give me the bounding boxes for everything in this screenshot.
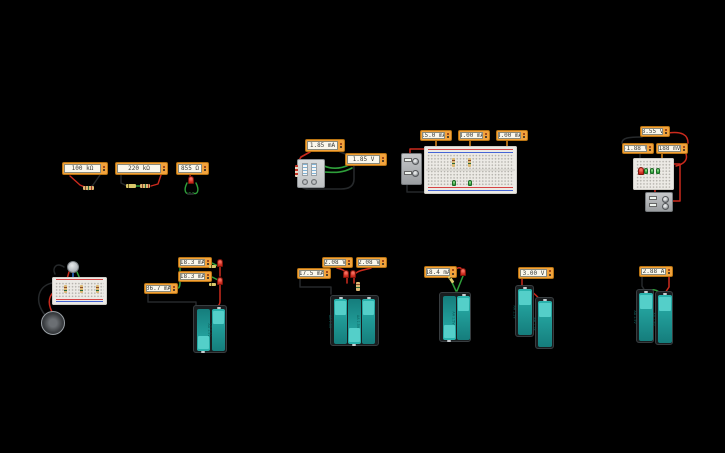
resistor[interactable] bbox=[96, 285, 99, 293]
power-rail-red bbox=[56, 279, 103, 280]
battery-terminal bbox=[644, 291, 648, 293]
multimeter-display: 2.08 V bbox=[358, 259, 380, 266]
ammeter-total[interactable]: 15.0 mA bbox=[420, 130, 452, 141]
meter-terminals-icon bbox=[484, 132, 488, 139]
multimeter-reading: 100 kΩ bbox=[72, 165, 94, 172]
multimeter-reading: 17.5 mA bbox=[299, 270, 324, 277]
battery-band bbox=[458, 298, 469, 311]
resistor[interactable] bbox=[209, 265, 216, 268]
battery-label: AA 1.5V bbox=[532, 320, 557, 328]
power-rail-red bbox=[428, 149, 513, 150]
green-led[interactable] bbox=[656, 168, 660, 174]
aa-battery[interactable]: AA 1.5V bbox=[518, 289, 532, 335]
battery-band bbox=[363, 301, 374, 315]
ammeter-led2[interactable]: 18.3 mA bbox=[178, 271, 212, 282]
battery-holder[interactable]: AA 1.5V bbox=[515, 285, 534, 337]
battery-holder[interactable]: AA 1.5V AA 1.5V bbox=[193, 305, 227, 353]
battery-terminal bbox=[543, 299, 547, 301]
multimeter-display: 1.85 mA bbox=[307, 141, 338, 150]
multimeter-display: 8.00 mA bbox=[460, 132, 483, 139]
multimeter-display: 18.3 mA bbox=[180, 273, 205, 280]
battery-terminal bbox=[217, 307, 221, 309]
aa-battery[interactable]: AA 1.5V bbox=[212, 309, 225, 351]
module-knob[interactable] bbox=[311, 179, 317, 185]
multimeter-display: 3.00 V bbox=[520, 269, 547, 277]
ammeter-loop[interactable]: 2.88 A bbox=[639, 266, 673, 277]
ammeter-branch2[interactable]: 8.00 mA bbox=[496, 130, 528, 141]
meter-terminals-icon bbox=[667, 268, 671, 275]
battery-holder[interactable]: AA 1.5V AA 1.5V bbox=[439, 292, 471, 342]
ammeter-led1[interactable]: 18.3 mA bbox=[178, 257, 212, 268]
battery-band bbox=[539, 303, 551, 317]
battery-band bbox=[335, 301, 346, 315]
aa-battery[interactable]: AA 1.5V bbox=[362, 299, 375, 344]
ammeter-module[interactable]: 1.85 mA bbox=[305, 139, 345, 152]
ammeter-branch1[interactable]: 8.00 mA bbox=[458, 130, 490, 141]
multimeter-display: 100 kΩ bbox=[64, 164, 101, 173]
multimeter-resistance-2[interactable]: 220 kΩ bbox=[115, 162, 168, 175]
multimeter-reading: 188 mV bbox=[659, 145, 681, 152]
multimeter-reading: -1.88 V bbox=[624, 145, 647, 152]
multimeter-reading: 2.08 V bbox=[324, 259, 346, 266]
aa-battery[interactable]: AA 1.5V bbox=[538, 301, 552, 347]
meter-terminals-icon bbox=[522, 132, 526, 139]
meter-terminals-icon bbox=[339, 141, 343, 150]
battery-terminal bbox=[523, 287, 527, 289]
red-led[interactable] bbox=[350, 270, 356, 278]
battery-band bbox=[659, 297, 671, 311]
multimeter-reading: 8.55 V bbox=[642, 128, 663, 135]
red-led[interactable] bbox=[343, 270, 349, 278]
dual-switch-module[interactable] bbox=[297, 159, 325, 188]
resistor[interactable] bbox=[140, 184, 150, 188]
resistor[interactable] bbox=[83, 186, 94, 190]
psu-dial[interactable] bbox=[662, 196, 669, 203]
multimeter-reading: 36.7 mA bbox=[146, 285, 171, 292]
meter-terminals-icon bbox=[381, 259, 385, 266]
power-supply[interactable] bbox=[645, 192, 673, 212]
switch-slot[interactable] bbox=[302, 163, 308, 176]
multimeter-reading: 18.4 mA bbox=[426, 269, 450, 276]
meter-terminals-icon bbox=[451, 268, 455, 276]
meter-terminals-icon bbox=[102, 164, 106, 173]
multimeter-display: 36.7 mA bbox=[146, 285, 171, 292]
breadboard-center-gap bbox=[426, 169, 515, 171]
voltmeter-module[interactable]: 1.85 V bbox=[345, 153, 387, 166]
multimeter-display: 188 mV bbox=[658, 145, 681, 152]
battery-band bbox=[444, 325, 455, 338]
battery-terminal bbox=[448, 340, 452, 342]
power-supply[interactable] bbox=[401, 153, 422, 185]
power-rail-blue bbox=[56, 301, 103, 302]
battery-terminal bbox=[462, 294, 466, 296]
psu-screen bbox=[649, 203, 657, 207]
meter-terminals-icon bbox=[381, 155, 385, 164]
resistor[interactable] bbox=[64, 285, 67, 293]
multimeter-display: 18.3 mA bbox=[180, 259, 205, 266]
psu-screen bbox=[404, 171, 412, 175]
multimeter-reading: 18.3 mA bbox=[180, 273, 205, 280]
breadboard[interactable] bbox=[424, 146, 517, 194]
green-led[interactable] bbox=[644, 168, 648, 174]
battery-terminal bbox=[339, 297, 343, 299]
meter-terminals-icon bbox=[172, 285, 176, 292]
voltmeter-left[interactable]: -1.88 V bbox=[622, 143, 654, 154]
battery-band bbox=[198, 336, 209, 349]
multimeter-reading: 8.00 mA bbox=[460, 132, 483, 139]
meter-terminals-icon bbox=[206, 273, 210, 280]
battery-label: AA 1.5V bbox=[652, 315, 678, 323]
battery-band bbox=[349, 329, 360, 343]
battery-holder[interactable]: AA 1.5V bbox=[655, 291, 673, 345]
ammeter-total-parallel[interactable]: 36.7 mA bbox=[144, 283, 178, 294]
green-led[interactable] bbox=[452, 180, 456, 186]
multimeter-reading: 18.3 mA bbox=[180, 259, 205, 266]
resistor[interactable] bbox=[126, 184, 136, 188]
circuit-canvas[interactable]: 100 kΩ 220 kΩ 855 Ω 1.85 mA 1.85 V 15.0 … bbox=[0, 0, 725, 453]
power-rail-blue bbox=[428, 190, 513, 191]
multimeter-reading: 2.88 A bbox=[643, 268, 665, 275]
multimeter-reading: 3.00 V bbox=[523, 270, 545, 277]
multimeter-reading: 1.85 V bbox=[353, 156, 375, 163]
multimeter-reading: 15.0 mA bbox=[422, 132, 445, 139]
battery-band bbox=[519, 291, 531, 305]
red-led[interactable] bbox=[217, 277, 223, 285]
resistor[interactable] bbox=[209, 283, 216, 286]
green-led[interactable] bbox=[650, 168, 654, 174]
series-resistor[interactable] bbox=[295, 165, 298, 177]
multimeter-display: 17.5 mA bbox=[299, 270, 324, 277]
psu-screen bbox=[649, 196, 657, 200]
meter-terminals-icon bbox=[325, 270, 329, 277]
power-rail-blue bbox=[428, 152, 513, 153]
voltmeter-trio-2[interactable]: 2.08 V bbox=[356, 257, 387, 268]
meter-terminals-icon bbox=[446, 132, 450, 139]
aa-battery[interactable]: AA 1.5V bbox=[658, 295, 672, 343]
speaker[interactable] bbox=[41, 311, 65, 335]
ammeter-trio[interactable]: 17.5 mA bbox=[297, 268, 331, 279]
psu-dial[interactable] bbox=[412, 170, 419, 177]
voltmeter-right[interactable]: 188 mV bbox=[656, 143, 688, 154]
resistor[interactable] bbox=[356, 282, 360, 291]
battery-label: AA 1.5V bbox=[356, 318, 381, 325]
multimeter-display: 8.00 mA bbox=[498, 132, 521, 139]
multimeter-display: 1.85 V bbox=[347, 155, 380, 164]
multimeter-display: 2.88 A bbox=[641, 268, 666, 275]
power-rail-red bbox=[56, 299, 103, 300]
meter-terminals-icon bbox=[648, 145, 652, 152]
battery-label: AA 1.5V bbox=[207, 326, 230, 333]
red-led[interactable] bbox=[217, 259, 223, 267]
multimeter-display: 15.0 mA bbox=[422, 132, 445, 139]
battery-terminal bbox=[202, 351, 206, 353]
red-led[interactable] bbox=[188, 176, 194, 184]
psu-screen bbox=[404, 158, 412, 162]
battery-band bbox=[640, 295, 652, 309]
psu-dial[interactable] bbox=[412, 158, 419, 165]
multimeter-display: 18.4 mA bbox=[426, 268, 450, 276]
battery-terminal bbox=[367, 297, 371, 299]
multimeter-resistance-3[interactable]: 855 Ω bbox=[176, 162, 209, 175]
multimeter-display: 855 Ω bbox=[178, 164, 202, 173]
meter-terminals-icon bbox=[347, 259, 351, 266]
red-led[interactable] bbox=[460, 268, 466, 276]
wires-layer bbox=[0, 0, 725, 453]
battery-label: AA 1.5V bbox=[451, 314, 475, 321]
module-knob[interactable] bbox=[302, 179, 308, 185]
meter-terminals-icon bbox=[682, 145, 686, 152]
battery-holder[interactable]: AA 1.5V bbox=[535, 297, 554, 349]
meter-terminals-icon bbox=[548, 269, 552, 277]
multimeter-reading: 2.08 V bbox=[358, 259, 380, 266]
battery-label: AA 1.5V bbox=[512, 308, 537, 316]
meter-terminals-icon bbox=[203, 164, 207, 173]
multimeter-reading: 1.85 mA bbox=[310, 142, 335, 149]
psu-dial[interactable] bbox=[662, 203, 669, 210]
multimeter-display: 8.55 V bbox=[642, 128, 663, 135]
multimeter-display: 220 kΩ bbox=[117, 164, 161, 173]
battery-holder[interactable]: AA 1.5V AA 1.5V AA 1.5V bbox=[330, 295, 379, 346]
multimeter-display: 2.08 V bbox=[324, 259, 346, 266]
rgb-led[interactable] bbox=[67, 261, 79, 273]
multimeter-display: -1.88 V bbox=[624, 145, 647, 152]
multimeter-reading: 855 Ω bbox=[181, 165, 199, 172]
aa-battery[interactable]: AA 1.5V bbox=[457, 296, 470, 340]
battery-terminal bbox=[353, 344, 357, 346]
meter-terminals-icon bbox=[664, 128, 668, 135]
resistor[interactable] bbox=[80, 285, 83, 293]
voltmeter-trio-1[interactable]: 2.08 V bbox=[322, 257, 353, 268]
green-led[interactable] bbox=[468, 180, 472, 186]
red-led[interactable] bbox=[638, 167, 644, 175]
multimeter-reading: 8.00 mA bbox=[498, 132, 521, 139]
battery-terminal bbox=[663, 293, 667, 295]
meter-terminals-icon bbox=[162, 164, 166, 173]
switch-slot[interactable] bbox=[311, 163, 317, 176]
voltmeter-top[interactable]: 8.55 V bbox=[640, 126, 670, 137]
ammeter-pack[interactable]: 18.4 mA bbox=[424, 266, 457, 278]
resistor[interactable] bbox=[468, 158, 471, 167]
battery-band bbox=[213, 311, 224, 324]
multimeter-reading: 220 kΩ bbox=[128, 165, 150, 172]
resistor[interactable] bbox=[452, 158, 455, 167]
power-rail-red bbox=[428, 187, 513, 188]
multimeter-resistance-1[interactable]: 100 kΩ bbox=[62, 162, 108, 175]
voltmeter-series[interactable]: 3.00 V bbox=[518, 267, 554, 279]
